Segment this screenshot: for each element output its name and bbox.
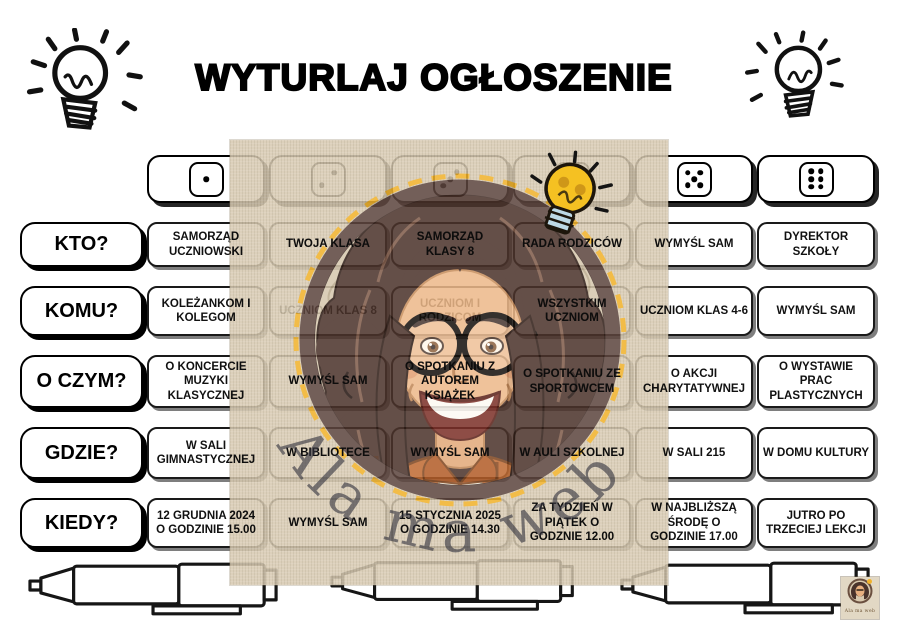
die-cell-6 <box>757 155 875 203</box>
die-pip <box>809 169 815 175</box>
die-pip <box>818 184 824 190</box>
die-pip <box>691 176 697 182</box>
die-pip <box>685 170 691 176</box>
question-kto: KTO? <box>20 222 143 267</box>
die-pip <box>697 170 703 176</box>
cell-kto-6: DYREKTOR SZKOŁY <box>757 222 875 267</box>
die-pip <box>809 184 815 190</box>
die-6-icon <box>799 162 834 197</box>
cell-gdzie-6: W DOMU KULTURY <box>757 427 875 479</box>
question-kiedy: KIEDY? <box>20 498 143 548</box>
question-o-czym: O CZYM? <box>20 355 143 408</box>
worksheet-page: WYTURLAJ OGŁOSZENIE KTO?SAMORZĄD UCZNIOW… <box>0 0 900 636</box>
cell-komu-6: WYMYŚL SAM <box>757 286 875 336</box>
die-pip <box>809 176 815 182</box>
die-pip <box>685 182 691 188</box>
brand-logo: Ala ma web <box>841 577 879 619</box>
cell-o-czym-6: O WYSTAWIE PRAC PLASTYCZNYCH <box>757 355 875 408</box>
lightbulb-doodle-right-icon <box>744 30 848 136</box>
question-gdzie: GDZIE? <box>20 427 143 479</box>
brand-logo-text: Ala ma web <box>845 609 876 614</box>
die-pip <box>203 176 209 182</box>
die-5-icon <box>677 162 712 197</box>
die-pip <box>818 169 824 175</box>
question-komu: KOMU? <box>20 286 143 336</box>
cell-kiedy-6: JUTRO PO TRZECIEJ LEKCJI <box>757 498 875 548</box>
die-pip <box>697 182 703 188</box>
die-pip <box>818 176 824 182</box>
lightbulb-doodle-left-icon <box>22 28 144 150</box>
lightbulb-small-icon <box>519 150 615 246</box>
brand-logo-portrait-icon <box>845 577 875 609</box>
die-1-icon <box>189 162 224 197</box>
